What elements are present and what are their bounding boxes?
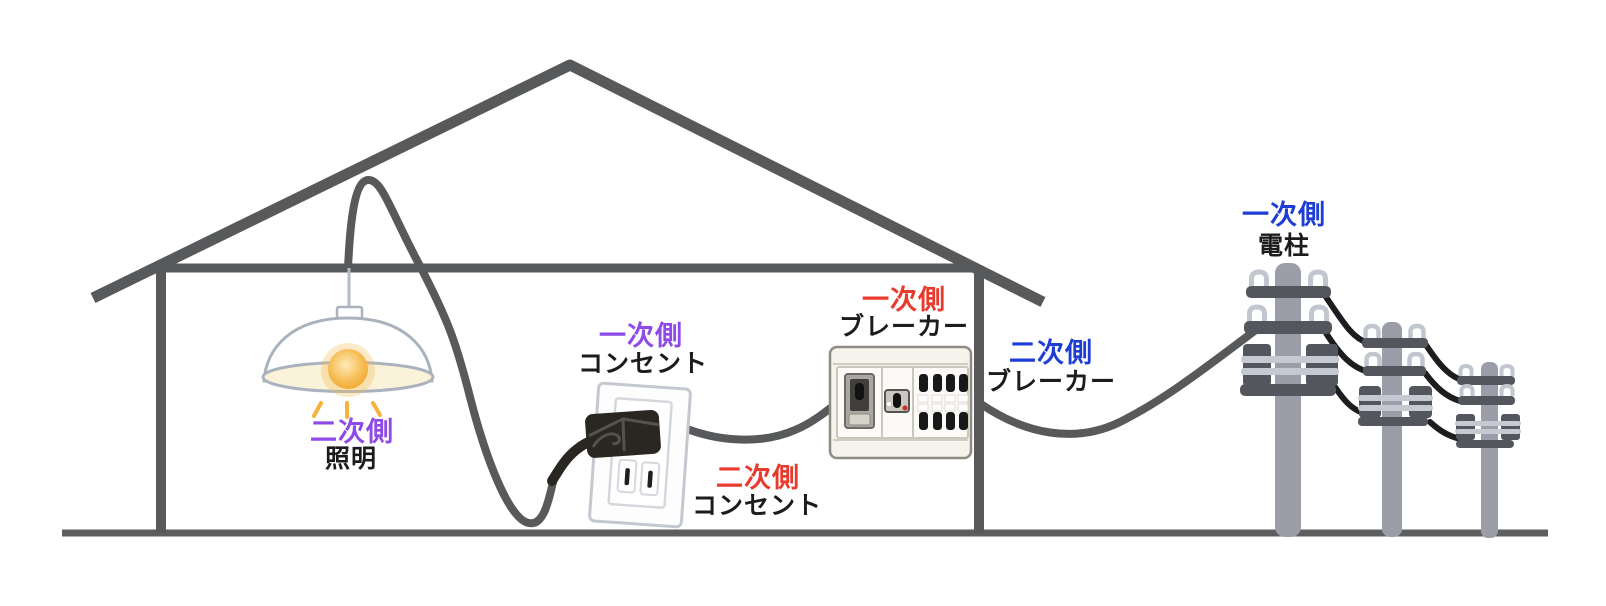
outlet-primary-name-label: コンセント (578, 349, 708, 378)
insulator-icon (1411, 326, 1424, 338)
transformer-band (1455, 421, 1521, 426)
breaker-toggle (959, 412, 968, 430)
wire-outlet-to-breaker (687, 402, 838, 440)
breaker-secondary-side-label: 二次側 (1009, 338, 1093, 369)
utility-pole-2 (1358, 322, 1433, 537)
pole-shaft (1275, 263, 1301, 537)
insulator-icon (1461, 366, 1472, 376)
cable (1326, 297, 1368, 343)
crossarm (1358, 417, 1428, 426)
breaker-label-slot (958, 395, 968, 402)
breaker-label-slot (945, 404, 955, 411)
insulator-icon (1502, 366, 1513, 376)
light-ray (314, 403, 321, 416)
cable (1426, 345, 1459, 379)
pole-name-label: 電柱 (1258, 231, 1310, 260)
insulator-icon (1252, 272, 1267, 286)
crossarm (1240, 384, 1336, 396)
breaker-label-slot (958, 404, 968, 411)
insulator-icon (1366, 326, 1379, 338)
breaker-toggle (959, 374, 968, 392)
transformer-band (1358, 405, 1433, 411)
breaker-toggle (919, 412, 928, 430)
breaker-label-slot (945, 395, 955, 402)
utility-pole-1 (1240, 263, 1339, 537)
transformer-drum (1359, 386, 1381, 418)
transformer-drum (1409, 386, 1432, 418)
main-breaker-toggle (855, 383, 864, 400)
breaker-primary-name-label: ブレーカー (839, 312, 969, 341)
transformer-band (1358, 395, 1433, 401)
light-rays (314, 403, 380, 417)
breaker-secondary-name-label: ブレーカー (986, 367, 1116, 396)
crossarm (1363, 366, 1426, 376)
breaker-toggle (946, 412, 955, 430)
insulator-icon (1250, 307, 1265, 321)
breaker-toggle (946, 374, 955, 392)
crossarm (1458, 396, 1515, 405)
light-ray (373, 403, 380, 415)
crossarm (1362, 338, 1428, 348)
insulator-icon (1462, 386, 1473, 396)
transformer-drum (1306, 344, 1338, 386)
breaker-toggle (919, 374, 928, 392)
insulator-icon (1312, 307, 1327, 321)
transformer-drum (1501, 414, 1520, 440)
breaker-label-slot (918, 395, 928, 402)
sub-breaker-dot-white (887, 402, 891, 406)
wiring-diagram: 二次側 照明 一次側 コンセント 二次側 コンセント 一次側 ブレーカー 二次側… (0, 0, 1606, 606)
outlet-secondary-name-label: コンセント (692, 491, 822, 520)
house-wiring (348, 180, 1257, 523)
sub-breaker-dot-red (903, 406, 908, 411)
insulator-icon (1410, 354, 1423, 366)
utility-pole-3 (1455, 362, 1521, 538)
crossarm (1456, 440, 1514, 448)
main-breaker-label (849, 414, 870, 425)
transformer-band (1455, 429, 1521, 434)
transformer-band (1241, 368, 1339, 375)
transformer-band (1241, 356, 1339, 363)
insulator-icon (1311, 272, 1326, 286)
outlet-secondary-side-label: 二次側 (716, 463, 800, 494)
illustration-stage: 二次側 照明 一次側 コンセント 二次側 コンセント 一次側 ブレーカー 二次側… (0, 0, 1606, 606)
breaker-label-slot (932, 395, 942, 402)
breaker-toggle (933, 412, 942, 430)
light-bulb (328, 349, 368, 389)
outlet-primary-side-label: 一次側 (599, 321, 683, 352)
breaker-toggle (933, 374, 942, 392)
transformer-drum (1243, 344, 1271, 386)
insulator-icon (1502, 386, 1513, 396)
breaker-label-slot (918, 404, 928, 411)
breaker-panel (830, 347, 971, 458)
lamp-name-label: 照明 (325, 444, 377, 473)
breaker-label-slot (932, 404, 942, 411)
transformer-drum (1456, 414, 1475, 440)
crossarm (1457, 376, 1515, 385)
insulator-icon (1367, 354, 1380, 366)
sub-breaker-toggle (893, 393, 901, 408)
crossarm (1244, 321, 1332, 334)
pole-shaft (1481, 362, 1498, 538)
pole-shaft (1382, 322, 1402, 537)
crossarm (1246, 286, 1331, 298)
pole-side-label: 一次側 (1242, 200, 1326, 231)
ceiling-lamp (263, 268, 433, 417)
